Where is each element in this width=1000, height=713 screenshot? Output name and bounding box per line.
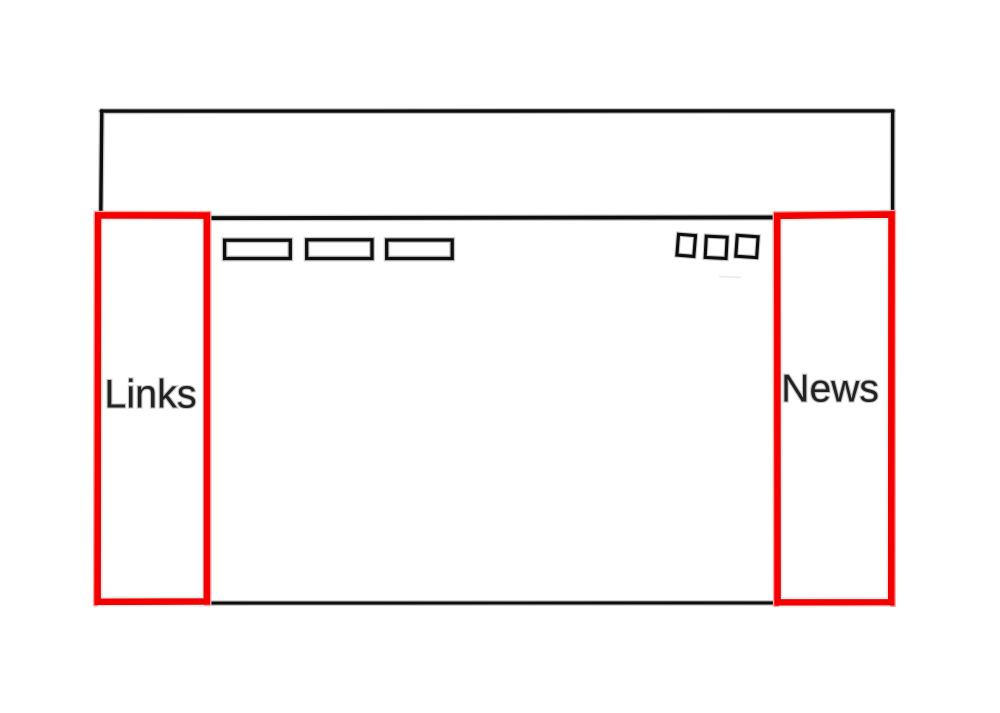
svg-text:News: News	[781, 368, 879, 411]
svg-text:Links: Links	[104, 373, 196, 417]
